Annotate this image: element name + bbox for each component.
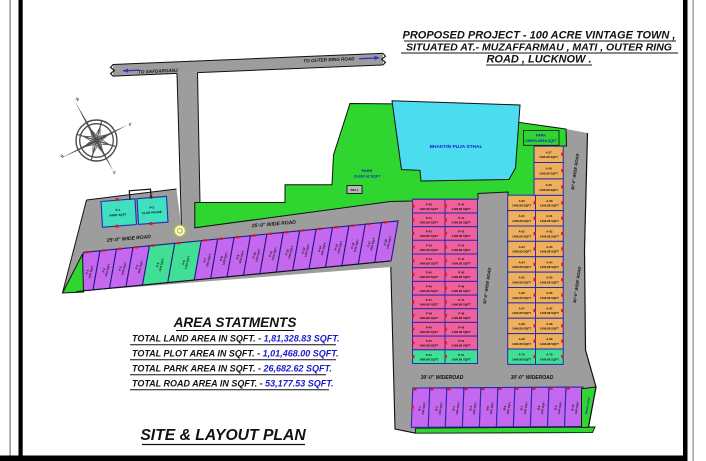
svg-text:1496.88 SQFT: 1496.88 SQFT bbox=[452, 316, 471, 320]
svg-text:P-40: P-40 bbox=[426, 202, 432, 206]
svg-text:1496.88 SQFT: 1496.88 SQFT bbox=[539, 171, 558, 175]
svg-text:SITUATED AT.- MUZAFFARMAU , MA: SITUATED AT.- MUZAFFARMAU , MATI , OUTER… bbox=[406, 42, 672, 54]
svg-text:1496.88 SQFT: 1496.88 SQFT bbox=[512, 265, 531, 269]
svg-text:P-42: P-42 bbox=[458, 230, 464, 234]
svg-text:1496.88 SQFT: 1496.88 SQFT bbox=[540, 204, 559, 208]
svg-text:1496.88 SQFT: 1496.88 SQFT bbox=[540, 265, 559, 269]
svg-text:26,682.62 SQFT: 26,682.62 SQFT bbox=[354, 175, 381, 179]
svg-text:1496.88 SQFT: 1496.88 SQFT bbox=[539, 155, 558, 159]
svg-text:A-69: A-69 bbox=[518, 337, 525, 341]
svg-text:1496.88 SQFT: 1496.88 SQFT bbox=[419, 248, 438, 252]
svg-text:30'-0" WIDEROAD: 30'-0" WIDEROAD bbox=[421, 375, 464, 381]
svg-text:1496.88 SQFT: 1496.88 SQFT bbox=[539, 188, 558, 192]
svg-text:A-66: A-66 bbox=[518, 291, 525, 295]
svg-text:A-67: A-67 bbox=[518, 307, 525, 311]
svg-text:P-50: P-50 bbox=[426, 339, 432, 343]
svg-text:A-65: A-65 bbox=[546, 276, 553, 280]
svg-text:GREEN AREA SQFT: GREEN AREA SQFT bbox=[525, 139, 556, 143]
svg-text:1496.88 SQFT: 1496.88 SQFT bbox=[419, 330, 438, 334]
svg-text:1496.88 SQFT: 1496.88 SQFT bbox=[512, 311, 531, 315]
svg-text:AREA STATMENTS: AREA STATMENTS bbox=[173, 315, 297, 330]
svg-text:A-57: A-57 bbox=[545, 150, 552, 154]
svg-text:A-61: A-61 bbox=[518, 214, 525, 218]
svg-text:1496.88 SQFT: 1496.88 SQFT bbox=[512, 327, 531, 331]
svg-text:TOTAL PLOT AREA IN SQFT. - 1,: TOTAL PLOT AREA IN SQFT. - 1,01,468.00 S… bbox=[132, 349, 339, 359]
svg-text:1496.88 SQFT: 1496.88 SQFT bbox=[419, 221, 438, 225]
svg-text:A-61: A-61 bbox=[546, 214, 553, 218]
svg-text:1496.88 SQFT: 1496.88 SQFT bbox=[512, 234, 531, 238]
svg-text:P-47: P-47 bbox=[458, 298, 464, 302]
svg-text:A-63: A-63 bbox=[518, 245, 525, 249]
svg-text:1496.88 SQFT: 1496.88 SQFT bbox=[512, 204, 531, 208]
svg-text:1496.88 SQFT: 1496.88 SQFT bbox=[452, 289, 471, 293]
svg-text:1496.88 SQFT: 1496.88 SQFT bbox=[512, 357, 531, 361]
svg-text:PARK: PARK bbox=[536, 134, 546, 138]
svg-text:A-68: A-68 bbox=[518, 322, 525, 326]
svg-text:P-44: P-44 bbox=[426, 257, 432, 261]
svg-text:1496.88 SQFT: 1496.88 SQFT bbox=[452, 248, 471, 252]
svg-text:1496.88 SQFT: 1496.88 SQFT bbox=[452, 303, 471, 307]
svg-text:A-64: A-64 bbox=[546, 260, 553, 264]
svg-text:P-46: P-46 bbox=[426, 284, 432, 288]
svg-text:A-60: A-60 bbox=[518, 199, 525, 203]
svg-text:1496.88 SQFT: 1496.88 SQFT bbox=[419, 262, 438, 266]
svg-text:P-47: P-47 bbox=[426, 298, 432, 302]
svg-text:1496.88 SQFT: 1496.88 SQFT bbox=[452, 221, 471, 225]
svg-text:A-69: A-69 bbox=[546, 337, 553, 341]
svg-text:1496.88 SQFT: 1496.88 SQFT bbox=[452, 207, 471, 211]
svg-text:PARK: PARK bbox=[361, 168, 372, 173]
svg-text:1496.88 SQFT: 1496.88 SQFT bbox=[419, 357, 438, 361]
svg-text:1496.88 SQFT: 1496.88 SQFT bbox=[512, 280, 531, 284]
svg-text:1496.88 SQFT: 1496.88 SQFT bbox=[452, 357, 471, 361]
svg-text:1496.88 SQFT: 1496.88 SQFT bbox=[452, 262, 471, 266]
svg-text:P-48: P-48 bbox=[426, 312, 432, 316]
svg-text:1496.88 SQFT: 1496.88 SQFT bbox=[419, 344, 438, 348]
svg-text:1496.88 SQFT: 1496.88 SQFT bbox=[452, 234, 471, 238]
svg-text:A-67: A-67 bbox=[546, 307, 553, 311]
svg-text:WELL: WELL bbox=[350, 188, 359, 192]
svg-text:1496.88 SQFT: 1496.88 SQFT bbox=[452, 344, 471, 348]
svg-text:1496.88 SQFT: 1496.88 SQFT bbox=[452, 275, 471, 279]
svg-text:A-63: A-63 bbox=[546, 245, 553, 249]
svg-text:A-68: A-68 bbox=[546, 322, 553, 326]
svg-text:BHAKTIN PUJA STHAL: BHAKTIN PUJA STHAL bbox=[430, 144, 483, 150]
svg-text:P-42: P-42 bbox=[426, 230, 432, 234]
svg-text:1496.88 SQFT: 1496.88 SQFT bbox=[419, 207, 438, 211]
svg-text:P-45: P-45 bbox=[426, 271, 432, 275]
svg-text:1496.88 SQFT: 1496.88 SQFT bbox=[419, 234, 438, 238]
svg-text:P-43: P-43 bbox=[458, 243, 464, 247]
svg-text:P-49: P-49 bbox=[426, 325, 432, 329]
svg-text:1496.88 SQFT: 1496.88 SQFT bbox=[452, 330, 471, 334]
svg-text:A-60: A-60 bbox=[546, 199, 553, 203]
svg-text:A-58: A-58 bbox=[545, 167, 552, 171]
svg-text:1496.88 SQFT: 1496.88 SQFT bbox=[419, 289, 438, 293]
svg-text:1496.88 SQFT: 1496.88 SQFT bbox=[540, 280, 559, 284]
svg-text:1496.88 SQFT: 1496.88 SQFT bbox=[540, 342, 559, 346]
svg-text:P-49: P-49 bbox=[458, 325, 464, 329]
svg-text:P-51: P-51 bbox=[426, 353, 432, 357]
svg-text:P-50: P-50 bbox=[458, 339, 464, 343]
svg-text:1496.88 SQFT: 1496.88 SQFT bbox=[540, 357, 559, 361]
svg-text:P-41: P-41 bbox=[458, 216, 464, 220]
svg-text:P-44: P-44 bbox=[458, 257, 464, 261]
svg-text:P-41: P-41 bbox=[426, 216, 432, 220]
svg-text:ROAD , LUCKNOW .: ROAD , LUCKNOW . bbox=[486, 54, 591, 66]
svg-text:P-46: P-46 bbox=[458, 284, 464, 288]
svg-text:TOTAL ROAD AREA IN SQFT. - 53,: TOTAL ROAD AREA IN SQFT. - 53,177.53 SQF… bbox=[132, 379, 334, 389]
svg-text:P-45: P-45 bbox=[458, 271, 464, 275]
svg-text:P-40: P-40 bbox=[458, 202, 464, 206]
svg-text:1496.88 SQFT: 1496.88 SQFT bbox=[419, 275, 438, 279]
svg-text:1496.88 SQFT: 1496.88 SQFT bbox=[419, 303, 438, 307]
svg-text:P-2: P-2 bbox=[149, 205, 154, 209]
svg-text:SITE & LAYOUT PLAN: SITE & LAYOUT PLAN bbox=[140, 427, 306, 444]
svg-text:1496.88 SQFT: 1496.88 SQFT bbox=[540, 327, 559, 331]
svg-text:A-62: A-62 bbox=[546, 230, 553, 234]
svg-text:1496.88 SQFT: 1496.88 SQFT bbox=[540, 219, 559, 223]
svg-text:A-62: A-62 bbox=[518, 230, 525, 234]
svg-text:A-70: A-70 bbox=[518, 353, 525, 357]
svg-text:P-1: P-1 bbox=[115, 208, 120, 212]
svg-text:PROPOSED PROJECT - 100 ACRE VI: PROPOSED PROJECT - 100 ACRE VINTAGE TOWN… bbox=[402, 30, 675, 42]
svg-text:A-59: A-59 bbox=[545, 183, 552, 187]
svg-text:1496.88 SQFT: 1496.88 SQFT bbox=[540, 234, 559, 238]
svg-text:1496.88 SQFT: 1496.88 SQFT bbox=[419, 316, 438, 320]
svg-text:A-66: A-66 bbox=[546, 291, 553, 295]
svg-text:1496.88 SQFT: 1496.88 SQFT bbox=[540, 250, 559, 254]
svg-text:30'-0" WIDEROAD: 30'-0" WIDEROAD bbox=[511, 375, 554, 381]
svg-text:TOTAL PARK AREA IN SQFT. - 26,: TOTAL PARK AREA IN SQFT. - 26,682.62 SQF… bbox=[132, 364, 332, 374]
svg-text:1496.88 SQFT: 1496.88 SQFT bbox=[540, 311, 559, 315]
svg-text:1496.88 SQFT: 1496.88 SQFT bbox=[540, 296, 559, 300]
svg-text:A-65: A-65 bbox=[518, 276, 525, 280]
svg-text:1496.88 SQFT: 1496.88 SQFT bbox=[512, 342, 531, 346]
svg-text:A-70: A-70 bbox=[546, 353, 553, 357]
svg-text:1496.88 SQFT: 1496.88 SQFT bbox=[512, 250, 531, 254]
svg-text:1496.88 SQFT: 1496.88 SQFT bbox=[512, 219, 531, 223]
svg-text:TOTAL LAND AREA IN SQFT. - 1,8: TOTAL LAND AREA IN SQFT. - 1,81,328.83 S… bbox=[132, 334, 340, 344]
svg-text:P-48: P-48 bbox=[458, 312, 464, 316]
svg-text:1496.88 SQFT: 1496.88 SQFT bbox=[512, 296, 531, 300]
svg-text:P-43: P-43 bbox=[426, 243, 432, 247]
svg-text:P-51: P-51 bbox=[458, 353, 464, 357]
svg-text:A-64: A-64 bbox=[518, 260, 525, 264]
